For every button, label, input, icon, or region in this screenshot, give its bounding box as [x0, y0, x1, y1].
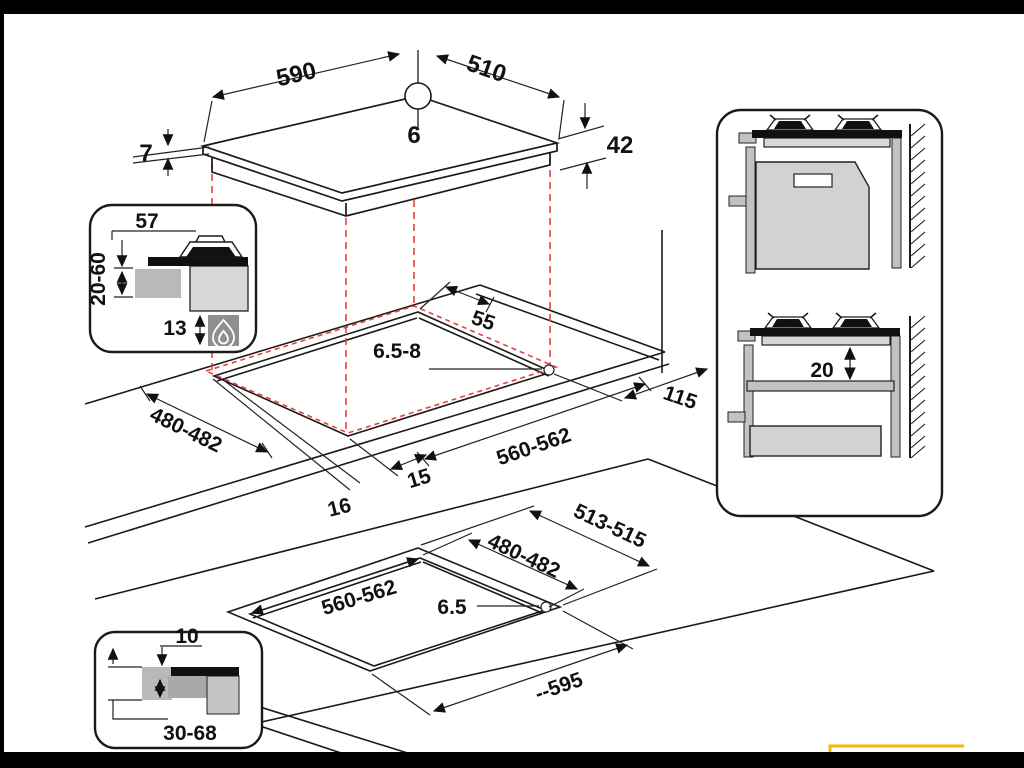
cabinet-section-flush [207, 676, 239, 714]
burner-cap [186, 247, 236, 257]
glass-section [148, 257, 248, 266]
dim-flush-step: 10 [175, 625, 198, 648]
oven-vent [794, 174, 832, 187]
wall-section-panel: 20 [717, 110, 942, 516]
dim-hob-glass: 7 [139, 140, 152, 167]
burner-detail-inset: 57 20-60 13 [87, 205, 256, 352]
projection-lines [206, 158, 556, 433]
dim-flush-range: 30-68 [163, 722, 217, 745]
dim-hob-body: 42 [607, 132, 634, 159]
gas-hole-mark [405, 83, 431, 109]
installation-diagram-page: 57 20-60 13 10 30-68 [0, 0, 1024, 768]
dim-cutout-side-gap: 115 [660, 381, 700, 414]
dim-burner-cap: 57 [135, 210, 158, 233]
dim-hob-hole: 6 [407, 122, 420, 149]
dim-cutout-front-b: 16 [325, 494, 353, 522]
dim-worktop-range: 20-60 [87, 252, 110, 306]
drawer [750, 426, 881, 456]
hob-bowl-section [190, 266, 248, 311]
flush-detail-inset: 10 30-68 [95, 625, 262, 748]
dim-shelf-gap: 20 [810, 359, 833, 382]
dim-cutout-depth: 480-482 [146, 403, 225, 457]
dim-flush-hole: 6.5 [437, 596, 467, 619]
diagram-canvas: 57 20-60 13 10 30-68 [0, 0, 1024, 768]
worktop-section-flush [142, 667, 172, 700]
dim-cutout-width: 560-562 [494, 423, 574, 470]
dim-cutout-hole: 6.5-8 [373, 340, 421, 363]
hob-glass-section-2 [750, 328, 900, 336]
shelf [747, 381, 894, 391]
dim-flush-outer-depth: 513-515 [570, 499, 650, 553]
dim-hob-width: 590 [274, 57, 319, 92]
dim-flush-outer-width: --595 [532, 668, 586, 706]
dim-flush-cut-depth: 480-482 [484, 529, 564, 582]
glass-section-flush [171, 667, 239, 676]
fixing-hole-mark [544, 365, 554, 375]
worktop-cutout-outline [214, 312, 552, 436]
hob-glass-section [752, 130, 902, 138]
dim-cutout-front-a: 15 [405, 464, 434, 493]
worktop-section [135, 269, 181, 298]
dim-hob-depth: 510 [463, 50, 510, 89]
dim-below-clearance: 13 [163, 317, 186, 340]
section-over-drawer: 20 [728, 313, 925, 458]
hob-body-section-flush [168, 676, 208, 698]
yellow-accent-line [830, 746, 964, 752]
